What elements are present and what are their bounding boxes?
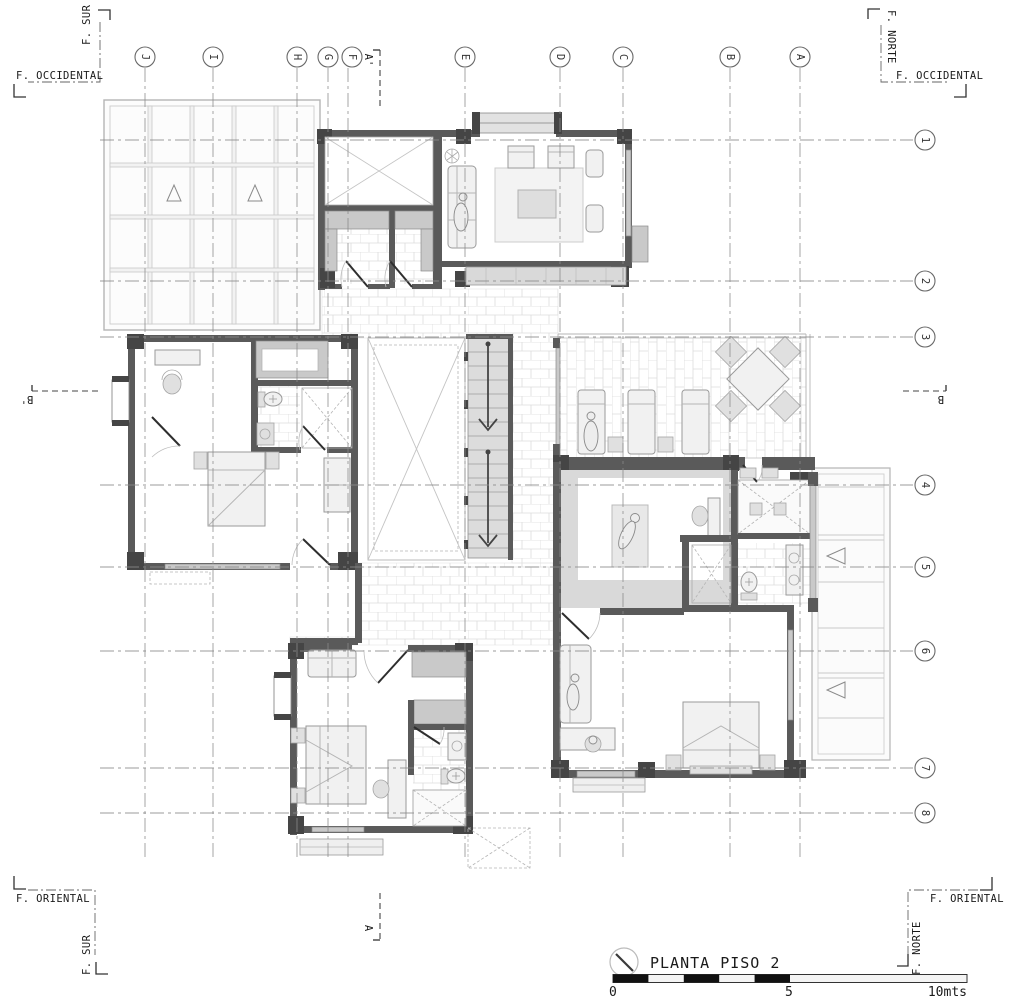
grid-bubble-row: 8 <box>915 803 935 823</box>
bed <box>194 452 279 526</box>
living-balcony <box>466 267 626 285</box>
svg-text:2: 2 <box>919 278 931 284</box>
section-marker-b-prime: B' <box>21 385 100 405</box>
grid-bubble-row: 5 <box>915 557 935 577</box>
facade-label-f-occidental: F. OCCIDENTAL <box>896 70 983 82</box>
pergola-roof-grid <box>104 100 320 330</box>
grid-row-bubbles: 1 2 3 4 5 6 7 8 <box>915 130 935 823</box>
closet-counter <box>325 229 337 271</box>
facade-label-f-sur: F. SUR <box>81 934 93 975</box>
svg-text:3: 3 <box>919 334 931 340</box>
svg-text:B: B <box>938 393 944 405</box>
section-marker-a: A <box>362 893 380 940</box>
grid-bubble-row: 7 <box>915 758 935 778</box>
svg-text:E: E <box>459 54 471 60</box>
svg-text:G: G <box>322 54 334 60</box>
grid-bubble-column: C <box>613 47 633 67</box>
grid-bubble-column: B <box>720 47 740 67</box>
sofa <box>560 645 591 723</box>
door-swing <box>292 539 330 565</box>
grid-column-bubbles: J I H G F E D C B A <box>135 47 810 67</box>
svg-text:C: C <box>617 54 629 60</box>
shower <box>413 790 466 826</box>
svg-text:A: A <box>794 54 806 61</box>
facade-label-f-norte: F. NORTE <box>885 10 897 64</box>
living-window <box>472 112 562 134</box>
grid-bubble-row: 4 <box>915 475 935 495</box>
svg-text:7: 7 <box>919 765 931 771</box>
svg-text:F: F <box>346 54 358 60</box>
terrace-dining-set <box>715 336 800 421</box>
svg-text:1: 1 <box>919 137 931 143</box>
door-swing <box>152 417 180 457</box>
bay-window <box>274 672 291 720</box>
section-marker-a-prime: A' <box>362 50 380 108</box>
canopy-projection <box>468 828 530 868</box>
svg-text:8: 8 <box>919 810 931 816</box>
closet-counter <box>325 211 389 229</box>
scale-zero: 0 <box>609 985 617 1000</box>
grid-bubble-column: F <box>342 47 362 67</box>
person-at-desk <box>589 736 597 744</box>
bath-window <box>810 485 816 605</box>
void-x-room <box>325 137 433 205</box>
floorplan-sheet: J I H G F E D C B A 1 2 3 4 5 6 7 8 A' A… <box>0 0 1014 1000</box>
svg-text:5: 5 <box>919 564 931 570</box>
floorplan-drawing: J I H G F E D C B A 1 2 3 4 5 6 7 8 A' A… <box>0 0 1014 1000</box>
bedroom2-block <box>274 643 530 868</box>
grid-bubble-column: D <box>550 47 570 67</box>
armchair <box>548 146 574 168</box>
vanity-sink <box>448 733 466 760</box>
bedroom1-window <box>165 564 280 569</box>
master-bedroom-block <box>551 612 806 792</box>
svg-text:6: 6 <box>919 648 931 654</box>
facade-label-f-norte: F. NORTE <box>911 921 923 975</box>
sun-lounger <box>682 390 709 454</box>
grid-bubble-column: I <box>203 47 223 67</box>
terrace-edge-glass <box>556 348 560 448</box>
staircase <box>464 334 513 560</box>
scale-five: 5 <box>785 985 793 1000</box>
facade-label-bottom-left: F. ORIENTAL F. SUR <box>14 876 108 975</box>
sofa <box>308 650 356 677</box>
closet <box>302 388 352 448</box>
double-height-void <box>368 338 465 560</box>
grid-bubble-row: 3 <box>915 327 935 347</box>
svg-text:J: J <box>139 54 151 60</box>
bedroom1-block <box>112 334 358 584</box>
north-arrow-icon <box>610 948 638 976</box>
armchair <box>586 150 603 177</box>
bay-window <box>112 376 129 426</box>
toilet <box>258 392 282 407</box>
balcony <box>573 778 645 792</box>
wardrobe <box>414 700 466 724</box>
side-roof-strip <box>812 468 890 760</box>
desk <box>560 728 615 752</box>
svg-text:D: D <box>554 54 566 60</box>
facade-label-bottom-right: F. ORIENTAL F. NORTE <box>897 877 1004 975</box>
grid-bubble-row: 6 <box>915 641 935 661</box>
master-window <box>788 630 793 720</box>
grid-bubble-row: 2 <box>915 271 935 291</box>
svg-text:4: 4 <box>919 482 931 488</box>
closet-counter <box>395 211 433 229</box>
grid-bubble-column: E <box>455 47 475 67</box>
toilet <box>441 769 465 784</box>
bed <box>291 726 366 804</box>
desk <box>373 760 406 818</box>
drawing-title: PLANTA PISO 2 <box>650 954 780 972</box>
desk <box>155 350 200 394</box>
wardrobe <box>412 652 466 677</box>
rug-and-table <box>495 168 583 242</box>
living-side-window <box>626 150 631 236</box>
grid-bubble-column: J <box>135 47 155 67</box>
bedroom2-window <box>312 827 364 832</box>
armchair <box>586 205 603 232</box>
terrace <box>553 334 810 458</box>
bed <box>666 702 775 774</box>
facade-label-f-occidental: F. OCCIDENTAL <box>16 70 103 82</box>
grid-bubble-column: A <box>790 47 810 67</box>
door-swing <box>562 613 600 639</box>
svg-text:H: H <box>291 54 303 60</box>
svg-text:B: B <box>724 54 736 60</box>
facade-label-f-oriental: F. ORIENTAL <box>16 893 90 905</box>
grid-bubble-row: 1 <box>915 130 935 150</box>
facade-label-f-oriental: F. ORIENTAL <box>930 893 1004 905</box>
svg-text:I: I <box>207 54 219 60</box>
scale-ten: 10mts <box>928 985 967 1000</box>
facade-label-top-right: F. NORTE F. OCCIDENTAL <box>868 9 983 97</box>
sink <box>257 423 274 445</box>
balcony <box>300 839 383 855</box>
facade-label-top-left: F. SUR F. OCCIDENTAL <box>14 4 110 97</box>
living-side-balcony <box>632 226 648 262</box>
door-swing <box>364 650 408 683</box>
section-marker-b: B <box>903 385 946 405</box>
grid-bubble-column: G <box>318 47 338 67</box>
svg-text:A: A <box>362 925 374 932</box>
facade-label-f-sur: F. SUR <box>81 4 93 45</box>
svg-text:B': B' <box>21 393 34 405</box>
roof-projection <box>150 572 210 584</box>
plant <box>445 149 459 163</box>
grid-bubble-column: H <box>287 47 307 67</box>
scale-bar: 0 5 10mts <box>609 975 967 1000</box>
closet-counter <box>421 229 433 271</box>
bathroom-shower <box>738 480 810 534</box>
svg-text:A': A' <box>362 54 374 67</box>
armchair <box>508 146 534 168</box>
toilet <box>741 572 757 600</box>
master-window <box>577 771 635 777</box>
